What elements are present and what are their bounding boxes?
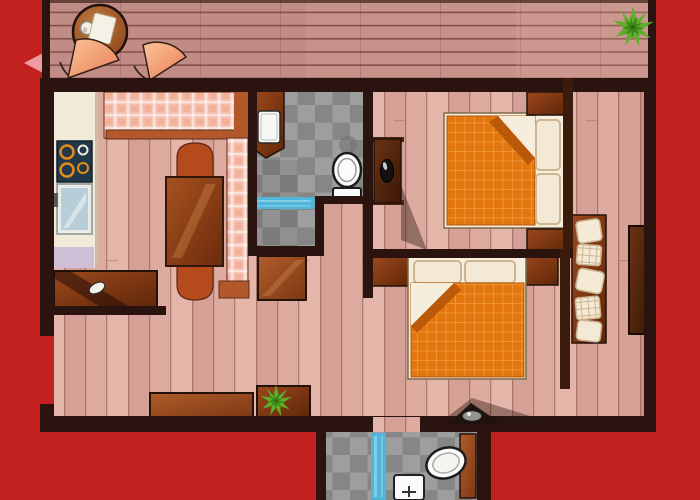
cushion: [576, 320, 602, 343]
wall-left: [40, 78, 54, 336]
floor-plan-illustration: [0, 0, 700, 500]
glass-fridge: [54, 184, 92, 234]
wall-bedroom2-top: [363, 249, 573, 258]
wash-basin: [394, 475, 424, 500]
wall-living-bathroom: [248, 92, 257, 246]
pillow: [465, 261, 515, 283]
cup-dot: [83, 27, 87, 33]
sink-basin: [462, 411, 482, 422]
pillow: [536, 120, 560, 170]
stove: [57, 141, 92, 182]
sofa-wood-rail: [106, 130, 246, 139]
wall-bathroom-notch-v: [315, 196, 324, 252]
deck-top-edge: [46, 0, 654, 3]
blue-shower-mat: [371, 433, 386, 500]
sofa-seat-vertical: [227, 138, 248, 284]
cushion-waffle: [576, 244, 601, 266]
cushion: [575, 218, 602, 243]
lavender-mat: [54, 247, 94, 268]
black-basin: [381, 160, 394, 183]
wall-bedroom2-right: [560, 249, 570, 389]
wall-bedroom1-right: [563, 78, 573, 256]
sofa-wood-cap: [219, 281, 249, 298]
wall-bathroom-bedroom1: [363, 78, 373, 298]
balcony-deck: [42, 0, 656, 85]
wall-bathroom-south: [248, 246, 324, 256]
doorway-threshold: [373, 417, 420, 432]
deck-right-border: [648, 0, 656, 79]
deck-left-border: [42, 0, 50, 79]
pillow: [536, 174, 560, 224]
nightstand: [527, 92, 564, 115]
arch-chair-bottom: [177, 266, 213, 300]
wall-lower-bath-right: [477, 424, 491, 500]
sideboard: [150, 393, 253, 418]
sink-glint: [467, 412, 471, 416]
kitchen: [54, 92, 98, 268]
cushion-waffle: [575, 296, 601, 320]
wall-bottom: [40, 416, 656, 432]
pillow: [414, 261, 461, 283]
wall-right: [644, 78, 656, 432]
arch-chair-top: [177, 143, 213, 177]
nightstand: [372, 257, 410, 286]
counter-edge: [95, 92, 98, 268]
wall-lower-bath-left: [316, 424, 326, 500]
lower-bathroom: [316, 424, 491, 500]
fridge-handle: [54, 193, 58, 207]
blue-bath-mat: [252, 197, 315, 209]
toilet: [333, 153, 361, 200]
drain-shadow: [339, 136, 357, 154]
cushion: [575, 268, 605, 295]
floor-plan-screenshot: [0, 0, 700, 500]
console-table: [54, 271, 157, 308]
wall-partition: [40, 306, 166, 315]
